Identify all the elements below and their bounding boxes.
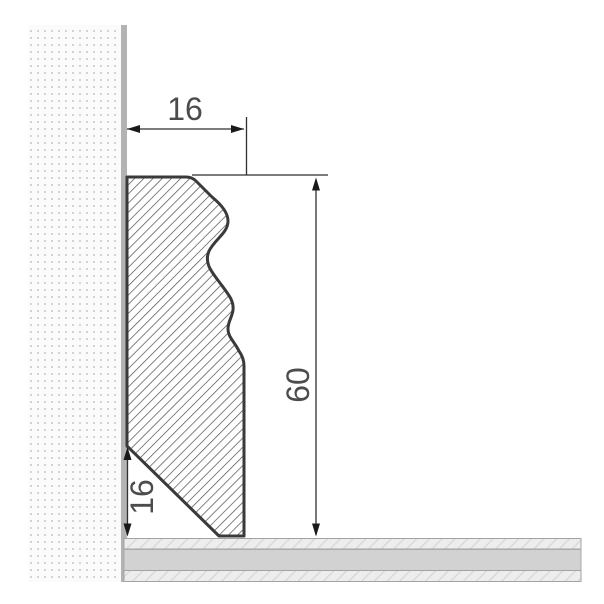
dim-bottom-bevel-label: 16 (124, 479, 160, 515)
arrow-down-icon (312, 524, 320, 537)
floor-layer-middle-gray (124, 550, 581, 571)
floor-layer-bottom-hatched (124, 571, 581, 582)
wall-section (28, 25, 127, 582)
arrow-right-icon (231, 125, 244, 133)
arrow-left-icon (127, 125, 140, 133)
dim-top-width: 16 (127, 91, 247, 175)
drawing-canvas: 16 60 16 (0, 0, 604, 604)
dim-top-width-label: 16 (167, 91, 203, 127)
dim-height-label: 60 (280, 367, 316, 403)
floor-section (124, 539, 581, 582)
wall-dotted-texture (28, 25, 121, 582)
technical-drawing: 16 60 16 (0, 0, 604, 604)
floor-layer-top-hatched (124, 539, 581, 550)
arrow-up-icon (312, 178, 320, 191)
